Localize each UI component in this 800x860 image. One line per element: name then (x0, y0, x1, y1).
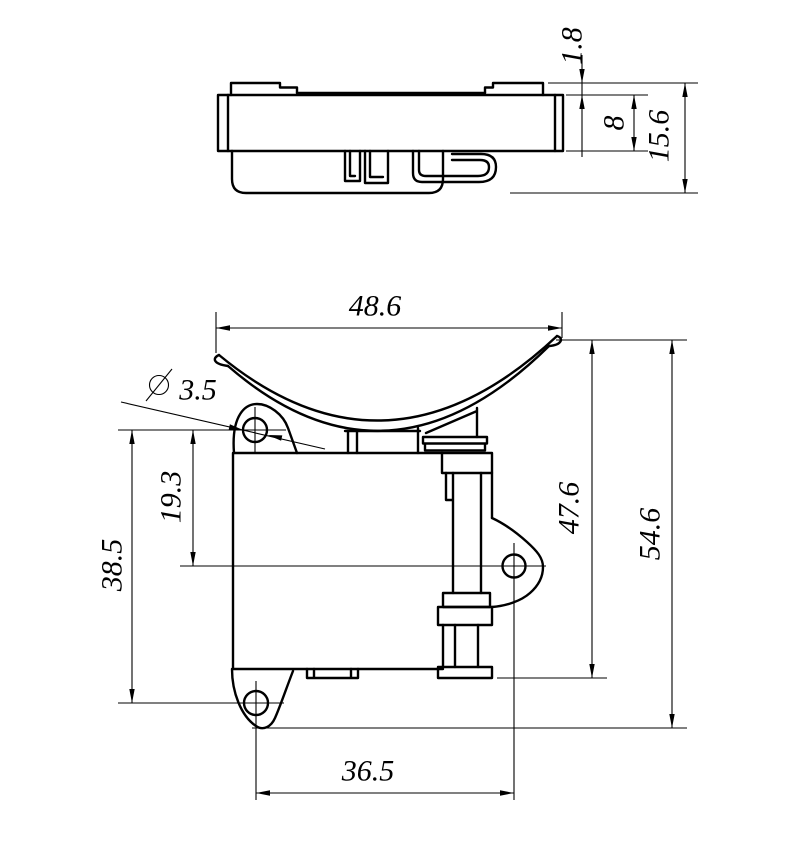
rail-lower-column (443, 625, 478, 667)
arrowhead (579, 95, 584, 109)
saddle-center-support (345, 428, 420, 453)
front-view: 48.6 3.5 19.3 38.5 47.6 54.6 36.5 (96, 290, 688, 801)
arrowhead (268, 435, 282, 441)
rail-foot (438, 667, 492, 678)
leader-line-hole-diameter (121, 402, 325, 449)
dim-plate-thickness: 8 (598, 116, 631, 131)
arrowhead (256, 790, 270, 795)
dim-upper-to-lower-hole: 38.5 (96, 539, 129, 593)
dim-cradle-to-rail-bottom: 47.6 (553, 482, 586, 535)
arrowhead (579, 69, 584, 83)
rail-block-1 (443, 593, 490, 607)
dim-overall-height: 54.6 (634, 508, 667, 561)
arrowhead (190, 552, 195, 566)
side-view-bar-outline (218, 95, 563, 151)
ear-tab-outline (492, 518, 543, 607)
arrowhead (216, 325, 230, 330)
arrowhead (129, 430, 134, 444)
rail-upper-column (446, 473, 492, 593)
saddle-inner-curve (228, 346, 549, 431)
side-view: 1.8 8 15.6 (218, 27, 698, 193)
side-view-right-tab (485, 83, 543, 95)
arrowhead (190, 430, 195, 444)
rail-top-block (442, 453, 492, 473)
dim-lip-height: 1.8 (556, 27, 589, 65)
saddle-right-plates (423, 437, 487, 451)
side-view-leg-1 (345, 151, 360, 181)
arrowhead (589, 340, 594, 354)
side-view-lower-body (232, 151, 443, 193)
dim-hole-diameter: 3.5 (178, 374, 217, 407)
arrowhead (669, 714, 674, 728)
lower-left-foot (232, 669, 293, 728)
arrowhead (631, 137, 636, 151)
dim-lower-hole-to-ear-hole: 36.5 (341, 755, 395, 788)
drawing-svg: 1.8 8 15.6 (0, 0, 800, 860)
arrowhead (548, 325, 562, 330)
arrowhead (129, 689, 134, 703)
arrowhead (669, 340, 674, 354)
arrowhead (500, 790, 514, 795)
dim-overall-thickness: 15.6 (643, 110, 676, 163)
rail-block-2 (438, 607, 492, 625)
arrowhead (631, 95, 636, 109)
bottom-tab (307, 669, 358, 678)
dim-upper-hole-to-ear-hole: 19.3 (155, 471, 188, 524)
side-view-hook-outer (413, 151, 496, 182)
arrowhead (682, 83, 687, 97)
arrowhead (589, 664, 594, 678)
side-view-bar-endcaps (228, 95, 555, 151)
side-view-leg-2 (365, 151, 388, 183)
dim-cradle-width: 48.6 (349, 290, 402, 323)
technical-drawing-canvas: 1.8 8 15.6 (0, 0, 800, 860)
side-view-left-tab (231, 83, 297, 95)
arrowhead (682, 179, 687, 193)
main-body-outline (233, 453, 443, 669)
